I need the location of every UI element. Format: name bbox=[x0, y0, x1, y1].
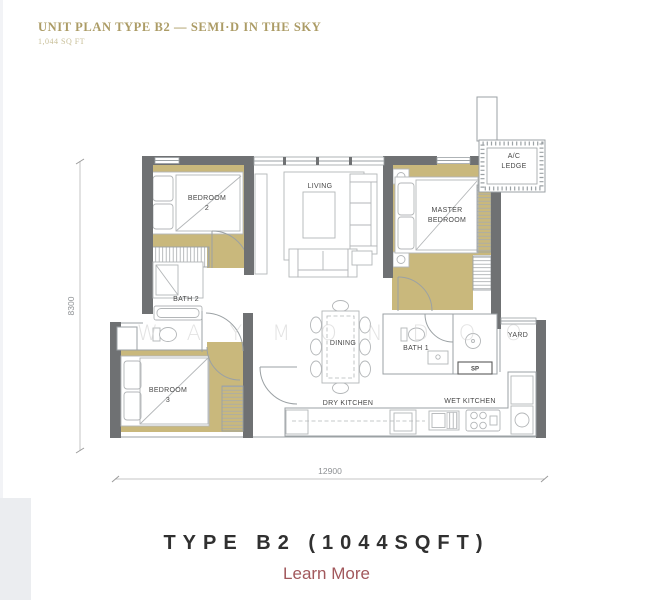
dry-kitchen-label: DRY KITCHEN bbox=[323, 400, 374, 407]
wet-kitchen-label: WET KITCHEN bbox=[444, 398, 495, 405]
dining: DINING bbox=[311, 301, 371, 394]
sp-label: SP bbox=[471, 367, 479, 373]
living-room: LIVING bbox=[255, 172, 377, 277]
master-bedroom-label: MASTER bbox=[432, 207, 463, 214]
living-label: LIVING bbox=[308, 183, 333, 190]
bedroom-3-number: 3 bbox=[166, 397, 170, 404]
bedroom-3-label: BEDROOM bbox=[149, 387, 187, 394]
ac-ledge: A/C LEDGE bbox=[477, 97, 545, 192]
height-dimension: 8300 bbox=[66, 296, 76, 315]
watermark: WAYMONDOO bbox=[137, 321, 552, 345]
bedroom-2-label: BEDROOM bbox=[188, 195, 226, 202]
master-bedroom-label2: BEDROOM bbox=[428, 217, 466, 224]
width-dimension: 12900 bbox=[318, 466, 342, 476]
ac-ledge-label2: LEDGE bbox=[501, 163, 526, 170]
page: UNIT PLAN TYPE B2 — SEMI·D IN THE SKY 1,… bbox=[0, 0, 653, 600]
bath-1-label: BATH 1 bbox=[403, 345, 429, 352]
floorplan-image: BEDROOM 2 LIVING bbox=[0, 0, 653, 600]
learn-more-link[interactable]: Learn More bbox=[0, 564, 653, 584]
unit-type-title: TYPE B2 (1044SQFT) bbox=[0, 532, 653, 555]
entry-door bbox=[260, 367, 297, 404]
bath-2-label: BATH 2 bbox=[173, 296, 199, 303]
bedroom-2-number: 2 bbox=[205, 205, 209, 212]
ac-ledge-label: A/C bbox=[508, 153, 521, 160]
